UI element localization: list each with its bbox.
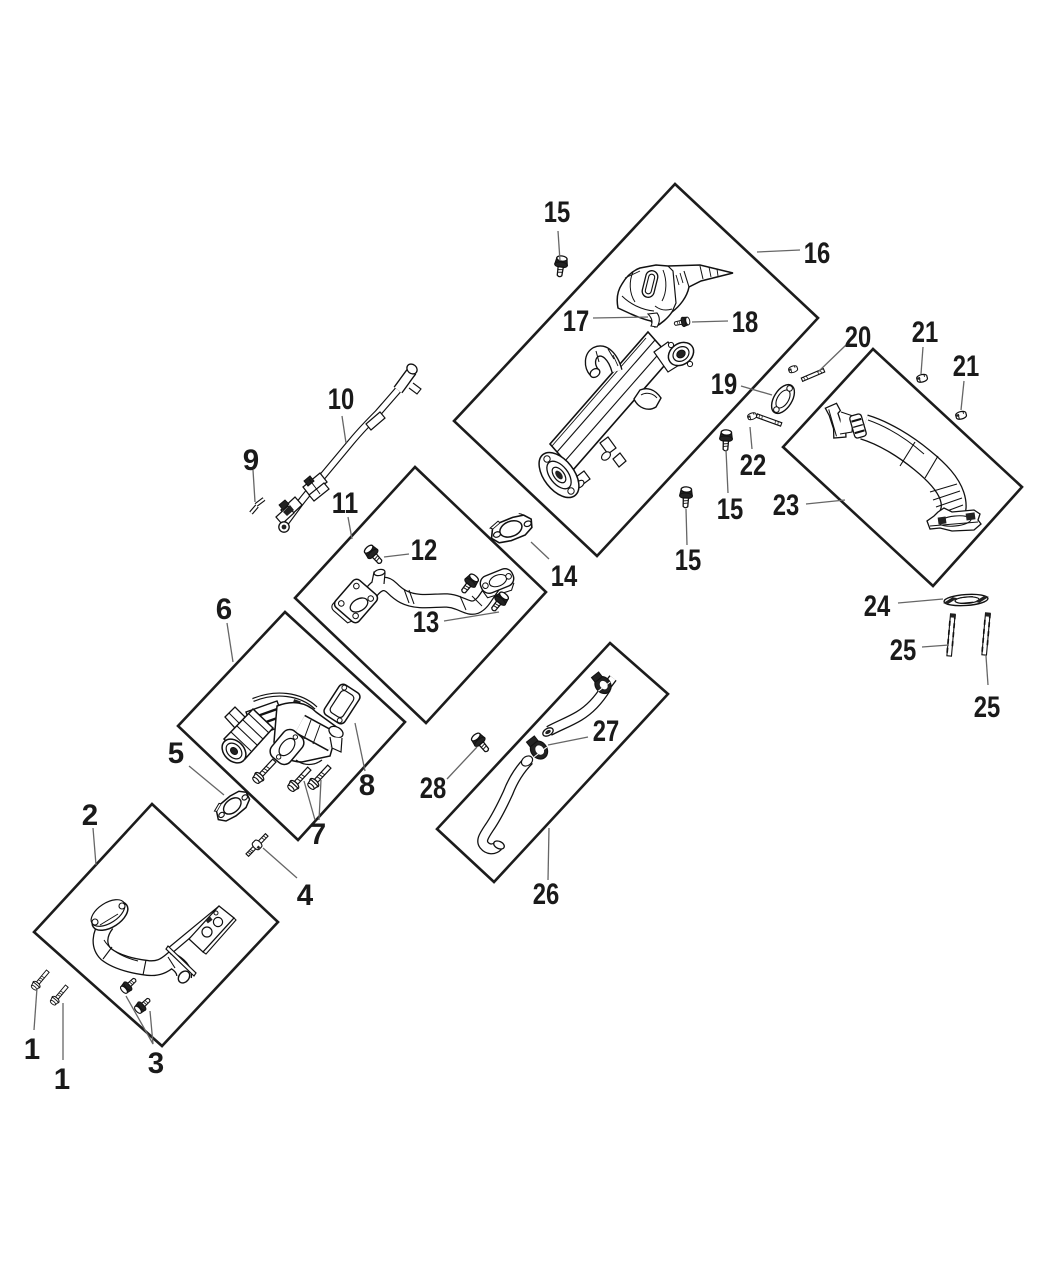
svg-text:17: 17 (563, 305, 590, 338)
svg-text:4: 4 (297, 879, 314, 912)
svg-text:2: 2 (82, 799, 98, 832)
svg-text:8: 8 (359, 769, 375, 802)
svg-text:11: 11 (332, 487, 359, 520)
svg-text:5: 5 (168, 737, 184, 770)
svg-text:21: 21 (912, 316, 939, 349)
svg-text:18: 18 (732, 306, 759, 339)
svg-text:14: 14 (551, 560, 578, 593)
svg-text:3: 3 (148, 1047, 164, 1080)
svg-text:6: 6 (216, 593, 232, 626)
svg-text:21: 21 (953, 350, 980, 383)
svg-text:20: 20 (845, 321, 872, 354)
svg-text:26: 26 (533, 878, 560, 911)
svg-text:24: 24 (864, 590, 891, 623)
svg-text:15: 15 (717, 493, 744, 526)
svg-text:10: 10 (328, 383, 355, 416)
svg-text:12: 12 (411, 534, 438, 567)
svg-text:13: 13 (413, 606, 440, 639)
svg-text:15: 15 (544, 196, 571, 229)
svg-text:1: 1 (24, 1033, 40, 1066)
svg-text:27: 27 (593, 715, 620, 748)
svg-text:23: 23 (773, 489, 800, 522)
svg-text:25: 25 (890, 634, 917, 667)
svg-text:28: 28 (420, 772, 447, 805)
svg-text:22: 22 (740, 449, 767, 482)
svg-text:25: 25 (974, 691, 1001, 724)
svg-text:7: 7 (310, 818, 326, 851)
svg-text:15: 15 (675, 544, 702, 577)
svg-text:16: 16 (804, 237, 831, 270)
svg-text:9: 9 (243, 444, 259, 477)
svg-text:19: 19 (711, 368, 738, 401)
svg-text:1: 1 (54, 1063, 70, 1096)
